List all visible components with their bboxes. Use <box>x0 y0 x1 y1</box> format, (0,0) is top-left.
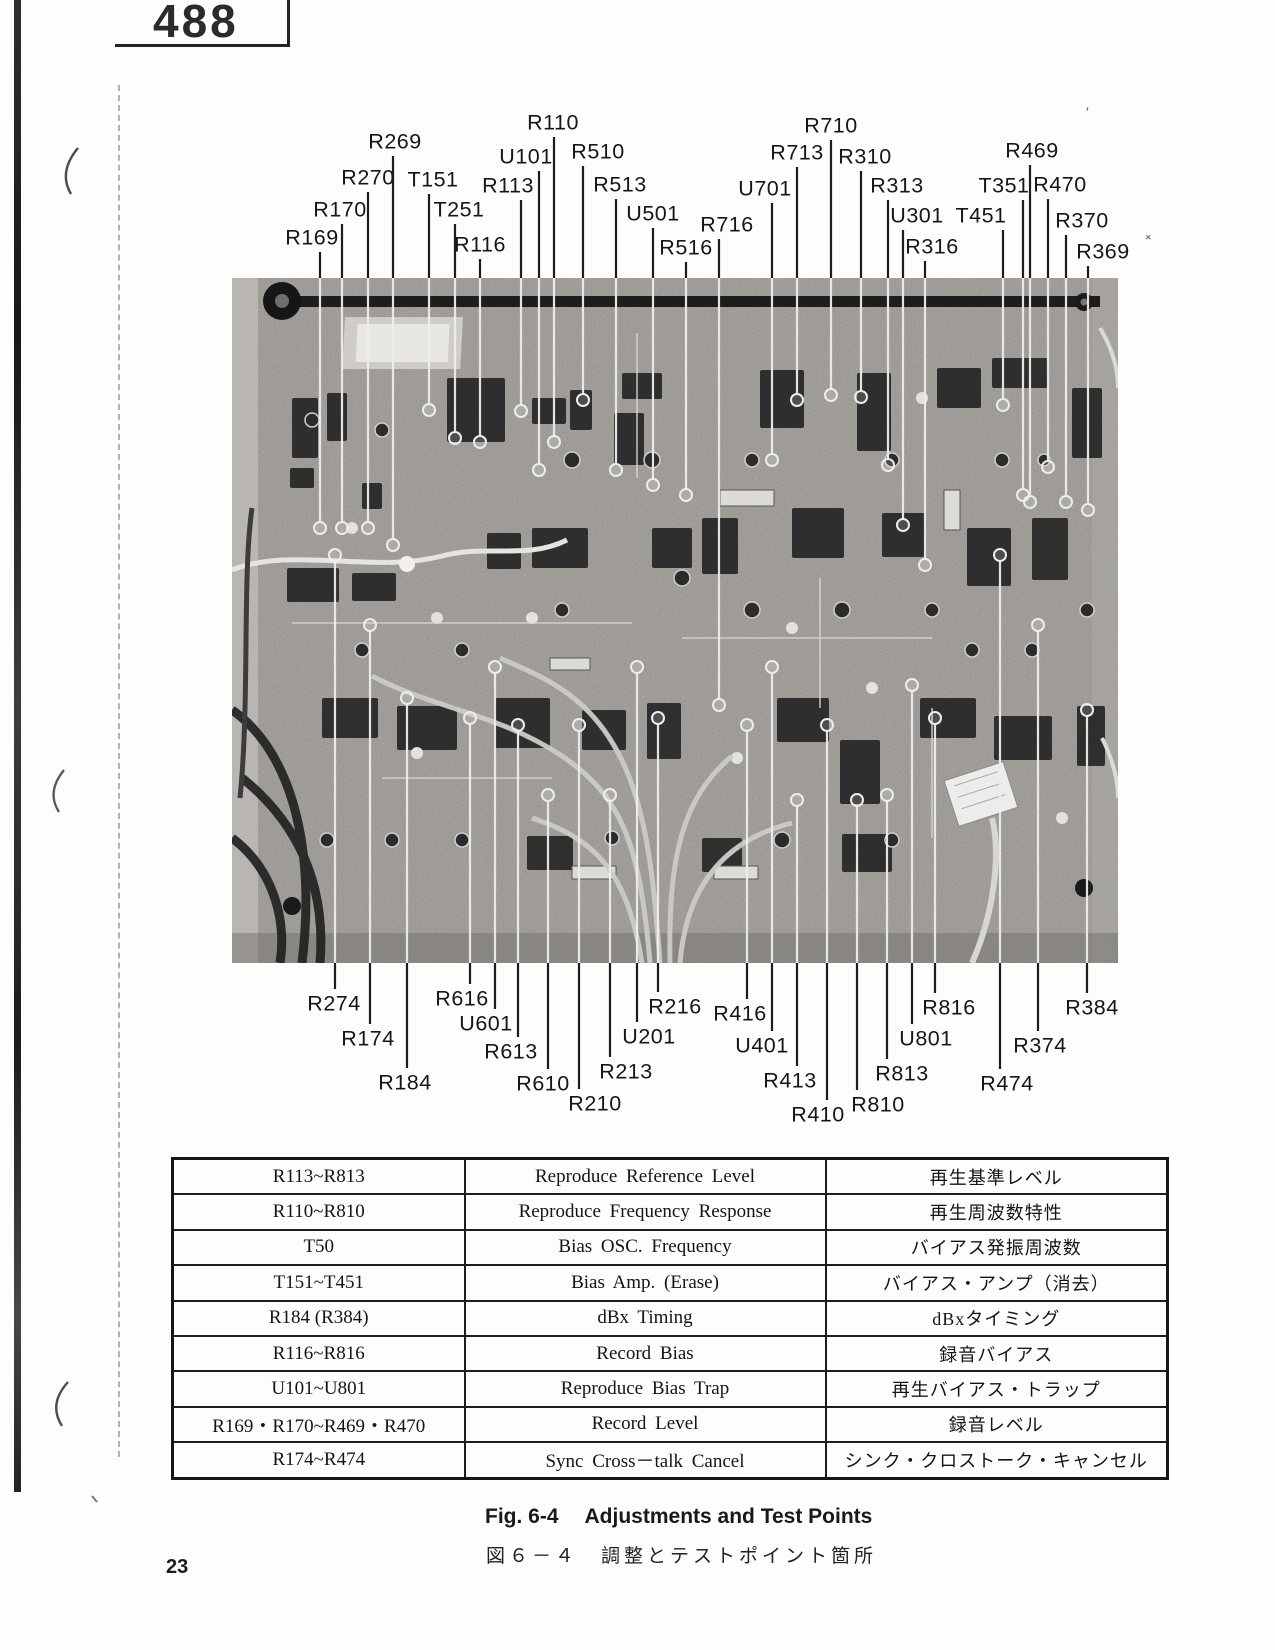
cell-en: Reproduce Reference Level <box>465 1159 826 1195</box>
doc-number-badge: 488 <box>115 0 290 47</box>
cell-ref: T151~T451 <box>173 1265 465 1300</box>
callout-label-r370: R370 <box>1055 209 1108 234</box>
cell-en: dBx Timing <box>465 1301 826 1336</box>
cell-ref: U101~U801 <box>173 1371 465 1406</box>
callout-label-r369: R369 <box>1076 240 1129 265</box>
callout-label-r469: R469 <box>1005 139 1058 164</box>
callout-label-r313: R313 <box>870 174 923 199</box>
table-row: U101~U801Reproduce Bias Trap再生バイアス・トラップ <box>173 1371 1168 1406</box>
callout-label-r169: R169 <box>285 226 338 251</box>
figure-caption-ja: 図６－４ 調整とテストポイント箇所 <box>486 1541 877 1568</box>
callout-label-r610: R610 <box>516 1072 569 1097</box>
callout-label-r274: R274 <box>307 992 360 1017</box>
callout-label-u701: U701 <box>738 177 791 202</box>
callout-label-r174: R174 <box>341 1027 394 1052</box>
adjustments-table-body: R113~R813Reproduce Reference Level再生基準レベ… <box>173 1159 1168 1479</box>
callout-label-r213: R213 <box>599 1060 652 1085</box>
callout-label-r713: R713 <box>770 141 823 166</box>
cell-en: Record Level <box>465 1407 826 1442</box>
table-row: T151~T451Bias Amp. (Erase)バイアス・アンプ（消去） <box>173 1265 1168 1300</box>
cell-ja: 録音レベル <box>826 1407 1168 1442</box>
callout-label-r269: R269 <box>368 130 421 155</box>
callout-label-r470: R470 <box>1033 173 1086 198</box>
cell-ref: R113~R813 <box>173 1159 465 1195</box>
figure-caption-ja-title: 調整とテストポイント箇所 <box>601 1546 877 1567</box>
callout-label-r410: R410 <box>791 1103 844 1128</box>
callout-label-r170: R170 <box>313 198 366 223</box>
cell-en: Bias OSC. Frequency <box>465 1230 826 1265</box>
fold-dashed-line <box>118 85 120 1457</box>
callout-label-u801: U801 <box>899 1027 952 1052</box>
cell-ref: R116~R816 <box>173 1336 465 1371</box>
callout-label-r516: R516 <box>659 236 712 261</box>
callout-label-t451: T451 <box>955 204 1006 229</box>
callout-label-u501: U501 <box>626 202 679 227</box>
callout-label-r416: R416 <box>713 1002 766 1027</box>
scan-speck: ′ <box>1086 104 1089 120</box>
cell-ja: バイアス発振周波数 <box>826 1230 1168 1265</box>
callout-label-r613: R613 <box>484 1040 537 1065</box>
callout-label-u101: U101 <box>499 145 552 170</box>
callout-label-u401: U401 <box>735 1034 788 1059</box>
table-row: R113~R813Reproduce Reference Level再生基準レベ… <box>173 1159 1168 1195</box>
cell-ref: T50 <box>173 1230 465 1265</box>
callout-label-t251: T251 <box>433 198 484 223</box>
doc-number: 488 <box>153 0 239 48</box>
table-row: R184 (R384)dBx TimingdBxタイミング <box>173 1301 1168 1336</box>
callout-label-r816: R816 <box>922 996 975 1021</box>
cell-ja: dBxタイミング <box>826 1301 1168 1336</box>
pcb-photo <box>232 278 1118 963</box>
cell-ref: R110~R810 <box>173 1194 465 1229</box>
callout-label-r374: R374 <box>1013 1034 1066 1059</box>
page-number: 23 <box>166 1556 188 1579</box>
callout-label-r710: R710 <box>804 114 857 139</box>
callout-label-r116: R116 <box>454 233 506 258</box>
table-row: R110~R810Reproduce Frequency Response再生周… <box>173 1194 1168 1229</box>
callout-label-u601: U601 <box>459 1012 512 1037</box>
callout-label-r474: R474 <box>980 1072 1033 1097</box>
cell-ja: 再生基準レベル <box>826 1159 1168 1195</box>
cell-ja: 再生周波数特性 <box>826 1194 1168 1229</box>
cell-ja: バイアス・アンプ（消去） <box>826 1265 1168 1300</box>
cell-en: Record Bias <box>465 1336 826 1371</box>
cell-ja: 録音バイアス <box>826 1336 1168 1371</box>
callout-label-u301: U301 <box>890 204 943 229</box>
callout-label-r216: R216 <box>648 995 701 1020</box>
cell-ref: R169・R170~R469・R470 <box>173 1407 465 1442</box>
figure-caption: Fig. 6-4Adjustments and Test Points <box>485 1505 872 1529</box>
callout-label-r210: R210 <box>568 1092 621 1117</box>
cell-en: Reproduce Frequency Response <box>465 1194 826 1229</box>
callout-label-r184: R184 <box>378 1071 431 1096</box>
callout-label-r810: R810 <box>851 1093 904 1118</box>
cell-en: Reproduce Bias Trap <box>465 1371 826 1406</box>
callout-label-r510: R510 <box>571 140 624 165</box>
cell-ja: 再生バイアス・トラップ <box>826 1371 1168 1406</box>
figure-caption-label: Fig. 6-4 <box>485 1505 559 1528</box>
figure-caption-ja-label: 図６－４ <box>486 1546 578 1567</box>
table-row: T50Bias OSC. Frequencyバイアス発振周波数 <box>173 1230 1168 1265</box>
callout-label-t151: T151 <box>407 168 458 193</box>
callout-label-r310: R310 <box>838 145 891 170</box>
cell-ja: シンク・クロストーク・キャンセル <box>826 1442 1168 1478</box>
callout-label-r813: R813 <box>875 1062 928 1087</box>
table-row: R116~R816Record Bias録音バイアス <box>173 1336 1168 1371</box>
cell-en: Sync Cross－talk Cancel <box>465 1442 826 1478</box>
callout-label-r113: R113 <box>482 174 534 199</box>
callout-label-r616: R616 <box>435 987 488 1012</box>
cell-ref: R184 (R384) <box>173 1301 465 1336</box>
figure-caption-title: Adjustments and Test Points <box>585 1505 873 1528</box>
table-row: R174~R474Sync Cross－talk Cancelシンク・クロストー… <box>173 1442 1168 1478</box>
callout-label-r316: R316 <box>905 235 958 260</box>
callout-label-r384: R384 <box>1065 996 1118 1021</box>
callout-label-r513: R513 <box>593 173 646 198</box>
callout-label-r716: R716 <box>700 213 753 238</box>
manual-page: ′ ˟ 488 <box>0 0 1275 1650</box>
callout-label-r413: R413 <box>763 1069 816 1094</box>
scan-speck: ˟ <box>1146 232 1151 248</box>
callout-label-t351: T351 <box>978 174 1029 199</box>
callout-label-r270: R270 <box>341 166 394 191</box>
cell-ref: R174~R474 <box>173 1442 465 1478</box>
callout-label-r110: R110 <box>527 111 579 136</box>
adjustments-table: R113~R813Reproduce Reference Level再生基準レベ… <box>171 1157 1169 1480</box>
binding-shadow-bar <box>14 0 21 1492</box>
table-row: R169・R170~R469・R470Record Level録音レベル <box>173 1407 1168 1442</box>
cell-en: Bias Amp. (Erase) <box>465 1265 826 1300</box>
callout-label-u201: U201 <box>622 1025 675 1050</box>
